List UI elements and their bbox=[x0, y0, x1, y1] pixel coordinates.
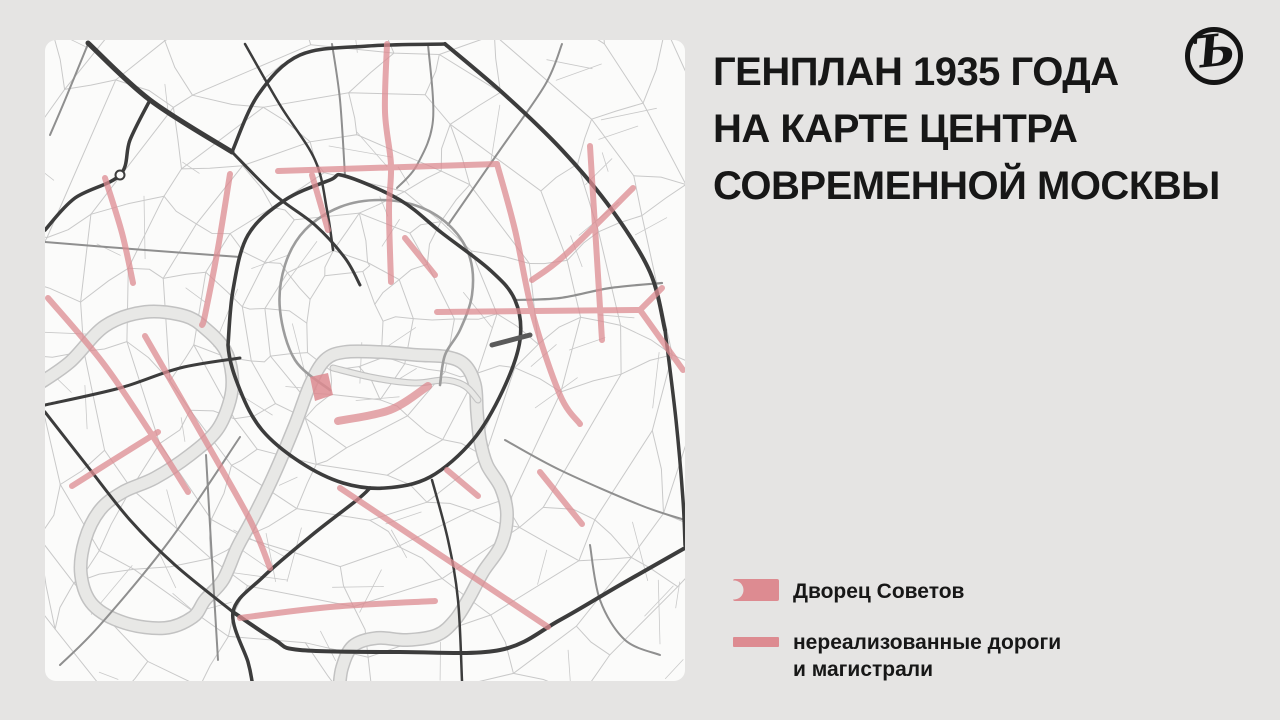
kommersant-letter: Ъ bbox=[1187, 24, 1240, 80]
moscow-map bbox=[45, 40, 685, 681]
title-line-2: НА КАРТЕ ЦЕНТРА bbox=[713, 101, 1213, 158]
title-line-3: СОВРЕМЕННОЙ МОСКВЫ bbox=[713, 158, 1213, 215]
roads-label-line2: и магистрали bbox=[793, 656, 1061, 683]
title-line-1: ГЕНПЛАН 1935 ГОДА bbox=[713, 44, 1213, 101]
legend-label-palace: Дворец Советов bbox=[793, 578, 964, 605]
infographic-page: ГЕНПЛАН 1935 ГОДА НА КАРТЕ ЦЕНТРА СОВРЕМ… bbox=[0, 0, 1280, 720]
roads-label-line1: нереализованные дороги bbox=[793, 629, 1061, 656]
page-title: ГЕНПЛАН 1935 ГОДА НА КАРТЕ ЦЕНТРА СОВРЕМ… bbox=[713, 44, 1213, 215]
legend-label-roads: нереализованные дороги и магистрали bbox=[793, 629, 1061, 683]
roads-swatch-icon bbox=[733, 637, 779, 647]
legend: Дворец Советов нереализованные дороги и … bbox=[733, 578, 1061, 707]
map-canvas bbox=[45, 40, 685, 681]
legend-item-roads: нереализованные дороги и магистрали bbox=[733, 629, 1061, 683]
legend-item-palace: Дворец Советов bbox=[733, 578, 1061, 605]
kommersant-logo-icon: Ъ bbox=[1185, 27, 1243, 85]
palace-swatch-icon bbox=[733, 578, 779, 602]
